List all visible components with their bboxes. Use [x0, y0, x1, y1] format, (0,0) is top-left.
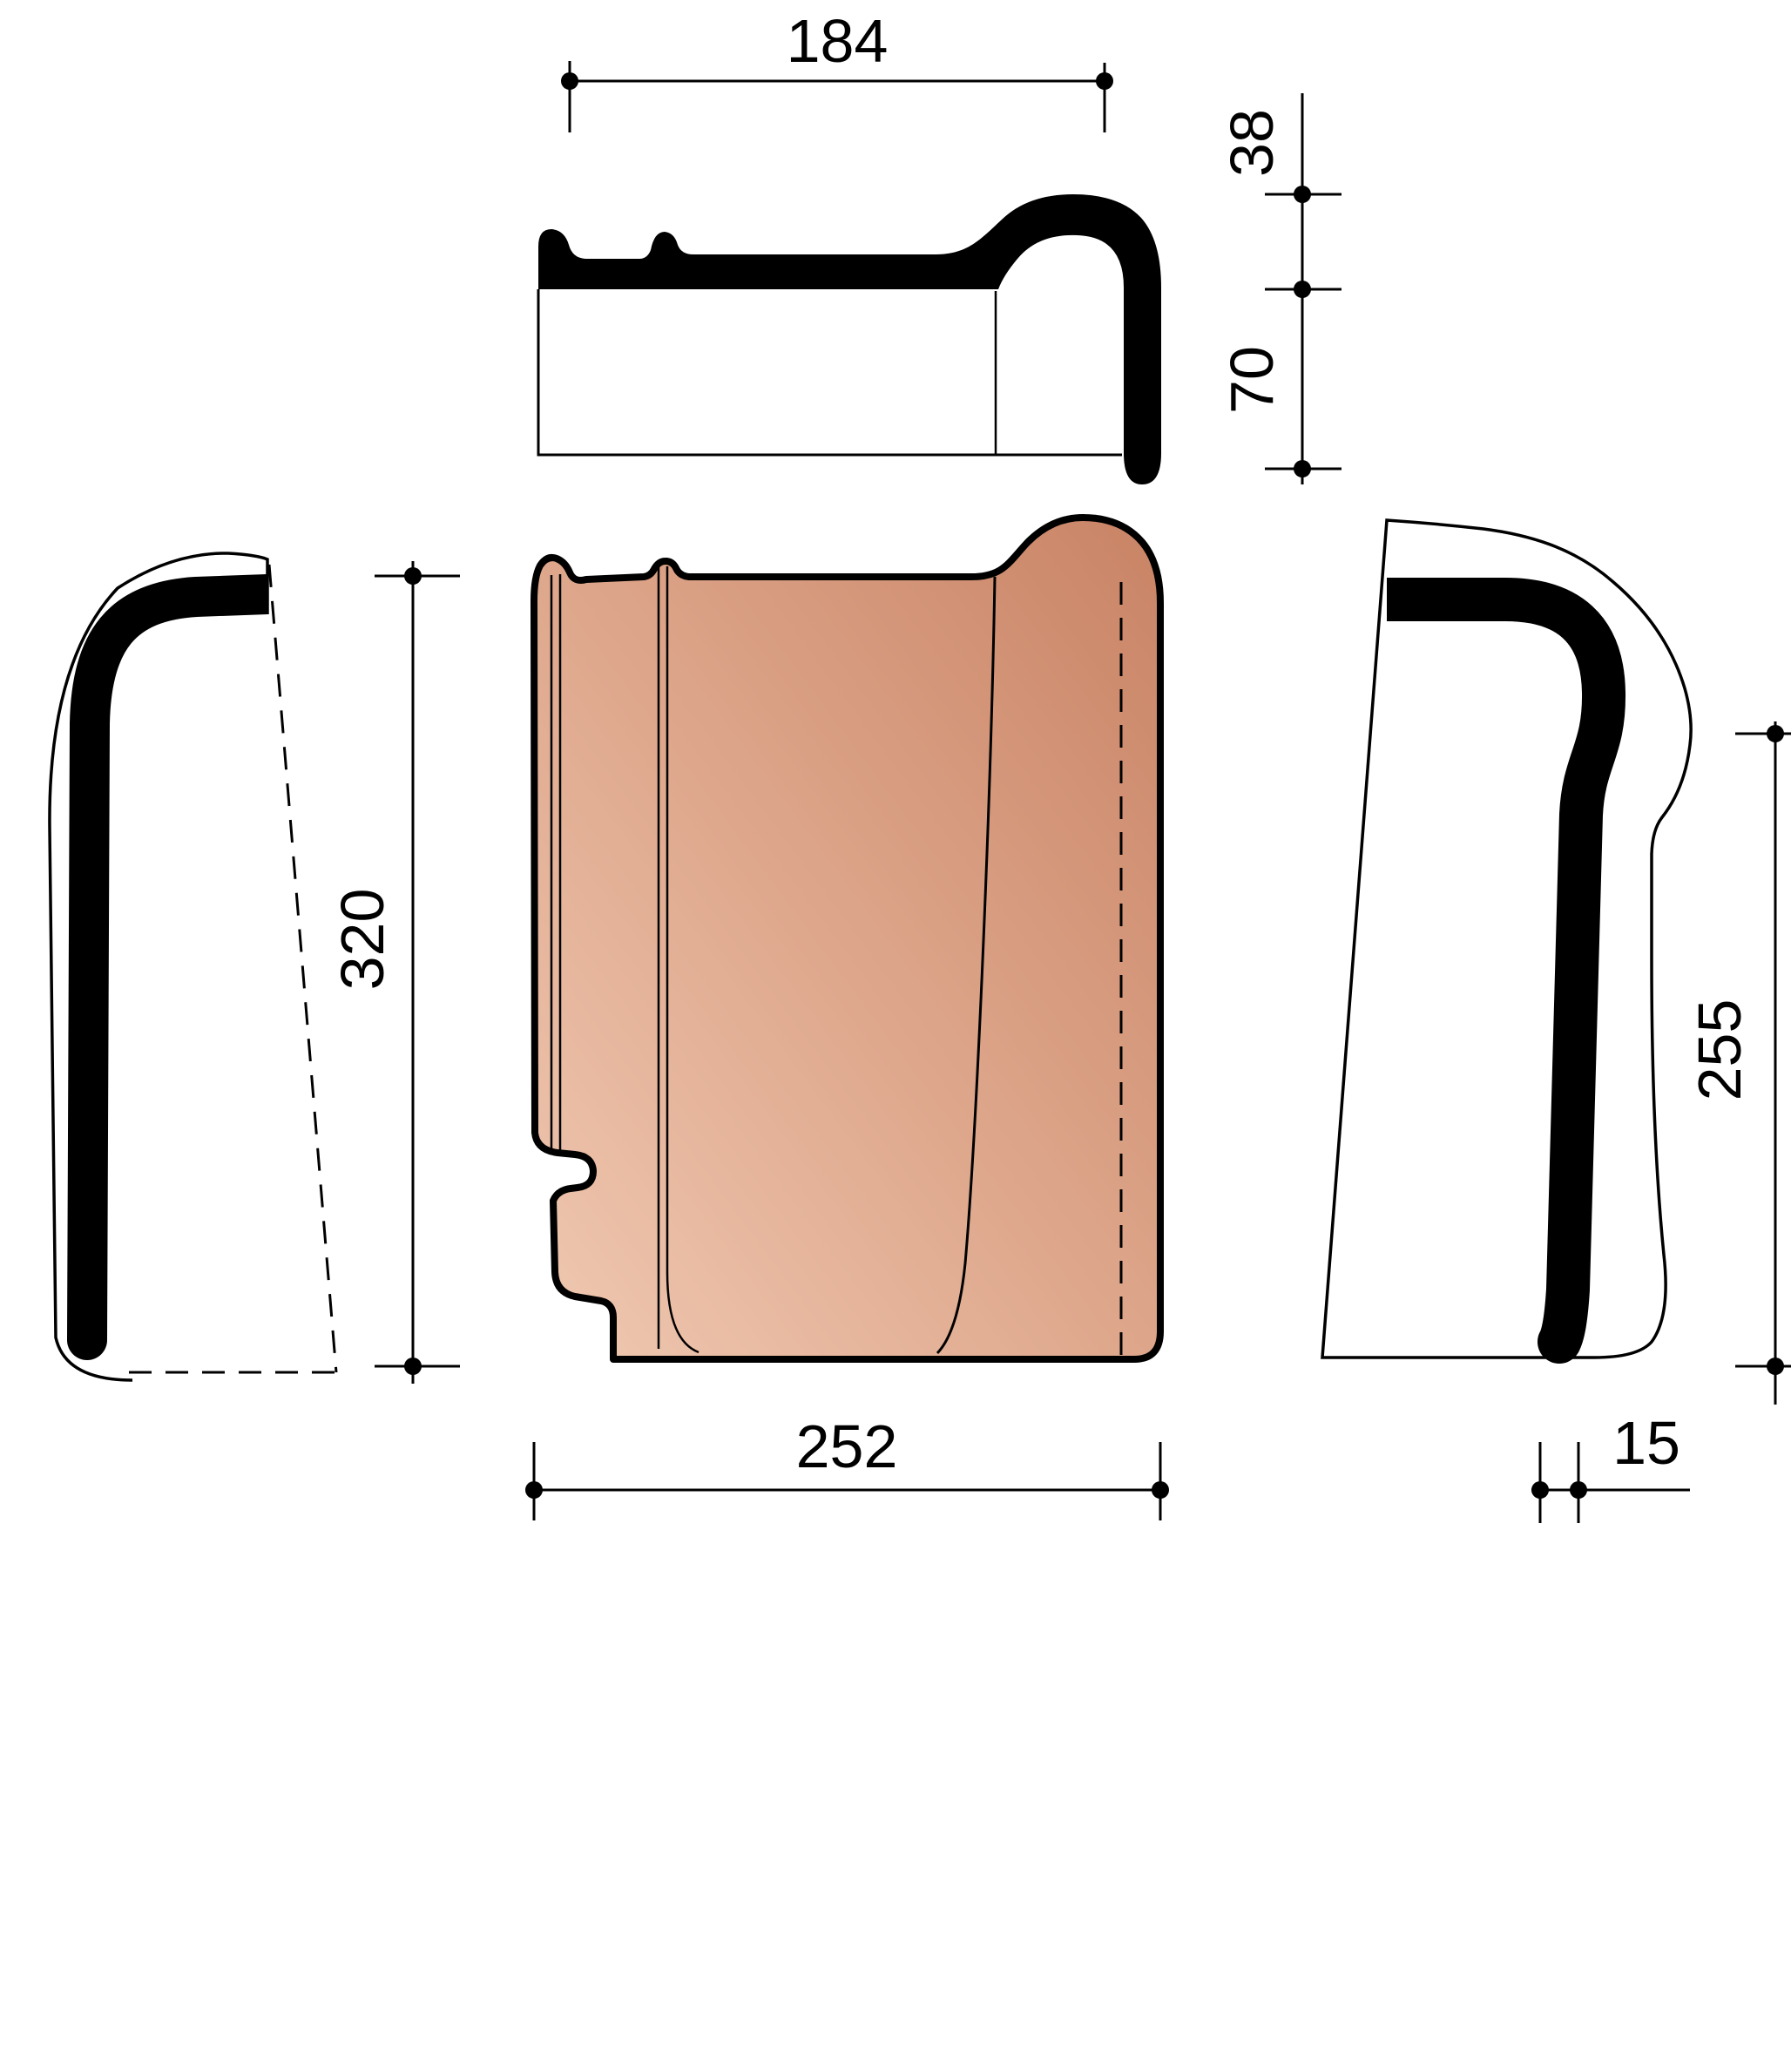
- top-view-section-profile: [538, 194, 1161, 484]
- right-view-outline: [1322, 520, 1691, 1358]
- dim-255-dot-bottom: [1767, 1358, 1784, 1375]
- dim-70-dot-bottom: [1294, 460, 1311, 477]
- right-view-band-tip: [1538, 1320, 1581, 1364]
- dim-320-dot-top: [404, 567, 422, 585]
- dimension-38-70: 38 70: [1218, 93, 1342, 484]
- dim-38-label: 38: [1218, 109, 1286, 177]
- dim-38-dot-top: [1294, 186, 1311, 203]
- left-view-band-tip: [67, 1320, 107, 1360]
- front-view-tile-face: [534, 518, 1160, 1359]
- front-view: [534, 518, 1160, 1359]
- dim-320-label: 320: [328, 889, 396, 991]
- top-section-view: [538, 194, 1161, 484]
- dimension-252: 252: [525, 1412, 1169, 1520]
- dim-255-dot-top: [1767, 725, 1784, 742]
- dim-38-dot-bottom: [1294, 281, 1311, 298]
- left-view-dashed-slant: [269, 565, 336, 1372]
- dimension-184: 184: [561, 7, 1113, 132]
- dim-252-dot-left: [525, 1481, 543, 1499]
- left-view-section-band: [87, 594, 267, 1340]
- dim-252-label: 252: [796, 1412, 898, 1480]
- dim-252-dot-right: [1152, 1481, 1169, 1499]
- right-side-view: [1322, 520, 1691, 1364]
- dimension-320: 320: [328, 561, 460, 1384]
- drawing-canvas: 184 38 70 320: [0, 0, 1791, 2072]
- left-side-view: [50, 553, 336, 1380]
- dim-15-dot-left: [1531, 1481, 1549, 1499]
- dimension-15: 15: [1531, 1409, 1690, 1523]
- dim-320-dot-bottom: [404, 1358, 422, 1375]
- dim-70-label: 70: [1218, 346, 1286, 414]
- dim-184-label: 184: [787, 7, 889, 75]
- dim-184-dot-right: [1096, 72, 1113, 90]
- dimension-255: 255: [1686, 721, 1791, 1405]
- dim-15-dot-right: [1570, 1481, 1587, 1499]
- top-view-body-outline: [538, 289, 1122, 455]
- roof-tile-technical-drawing: 184 38 70 320: [0, 0, 1791, 2072]
- dim-15-label: 15: [1612, 1409, 1680, 1477]
- dim-255-label: 255: [1686, 999, 1754, 1101]
- dim-184-dot-left: [561, 72, 578, 90]
